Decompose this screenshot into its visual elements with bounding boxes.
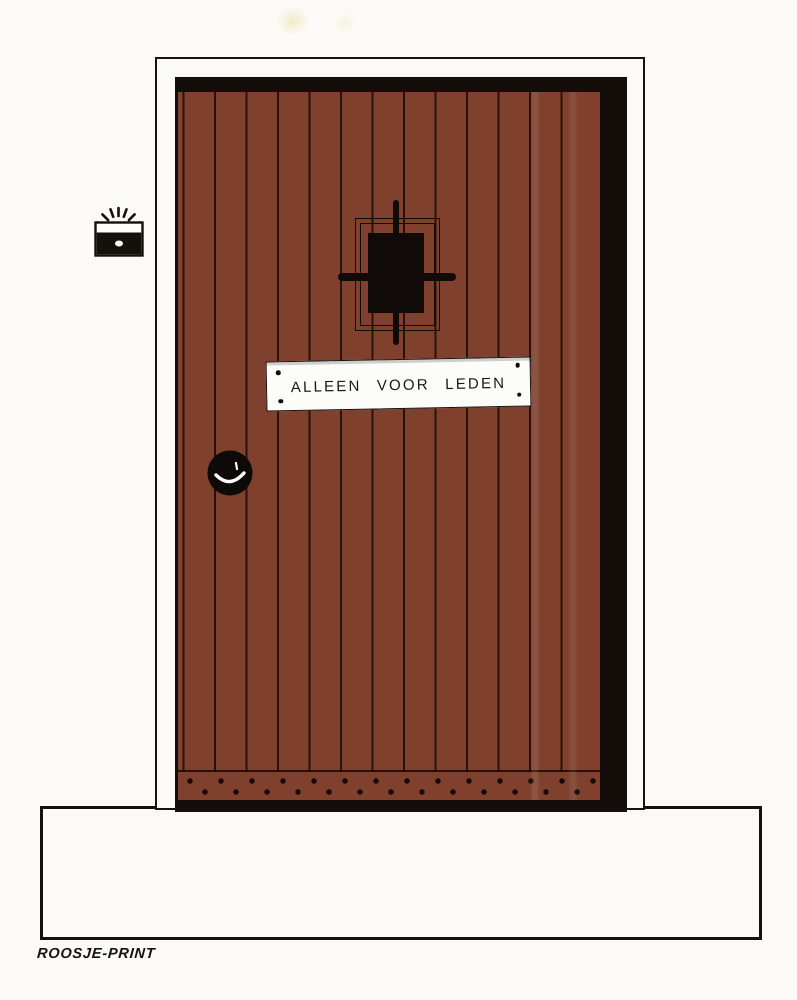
doorbell-icon [78,194,150,260]
poster-background: ALLEEN VOOR LEDEN Een avond over homobar… [0,0,797,1000]
footer-box [40,806,762,940]
door-planks [178,92,600,772]
sign-screw [515,363,520,368]
sign-screw [517,392,522,397]
door: ALLEEN VOOR LEDEN [175,77,627,812]
door-window [338,200,456,345]
paper-stain [332,12,358,34]
printer-credit: ROOSJE-PRINT [36,946,155,962]
window-horizontal-bar [338,273,456,281]
paper-stain [276,6,310,36]
door-kick-rail-rivets [178,773,600,800]
sign-label: ALLEEN VOOR LEDEN [291,372,507,395]
sign-screw [276,370,281,375]
sign-plate: ALLEEN VOOR LEDEN [266,356,532,411]
sign-screw [278,399,283,404]
door-panel: ALLEEN VOOR LEDEN [178,92,600,800]
doorknob-icon [206,449,254,497]
